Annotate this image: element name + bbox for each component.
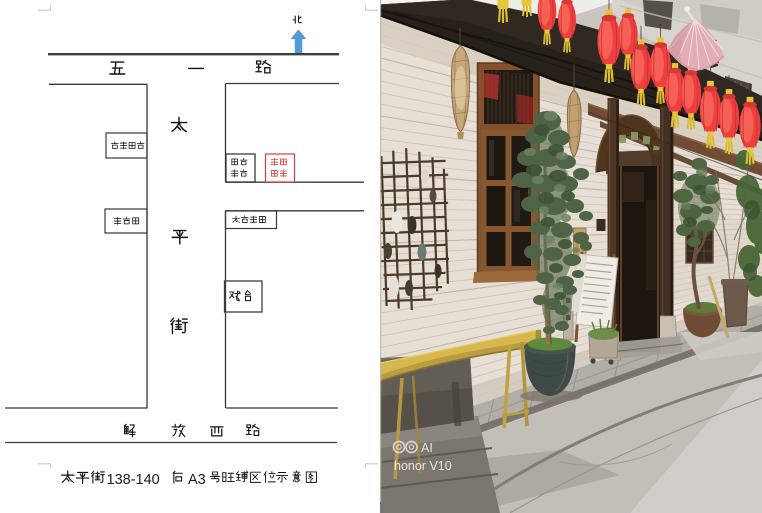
- svg-text:AI: AI: [421, 441, 433, 455]
- svg-text:A3: A3: [188, 472, 206, 488]
- svg-text:honor V10: honor V10: [394, 459, 452, 473]
- svg-text:138-140: 138-140: [107, 472, 160, 488]
